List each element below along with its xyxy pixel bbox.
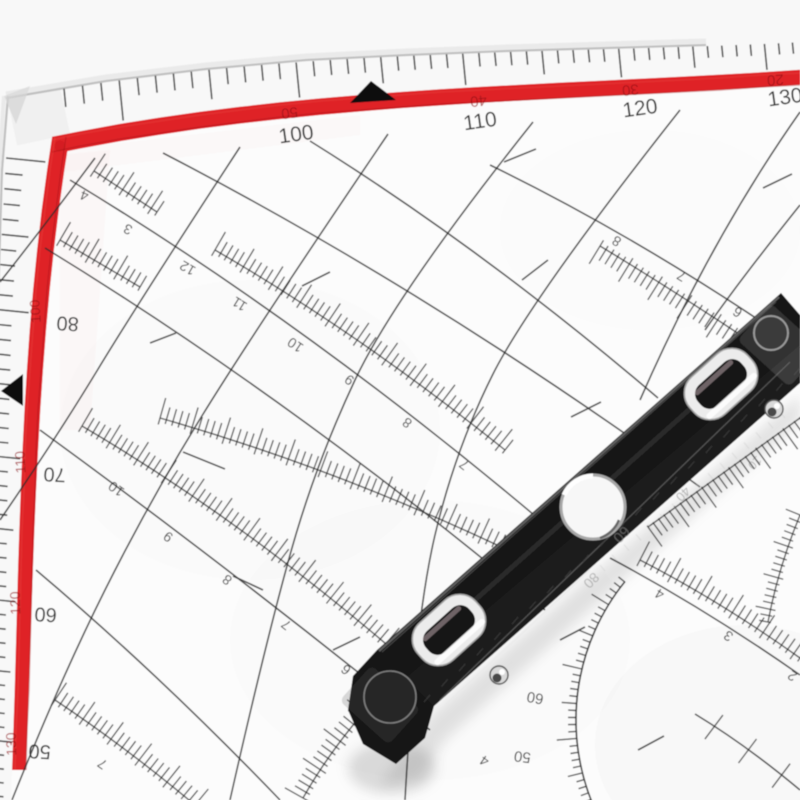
svg-text:30: 30 <box>621 80 639 98</box>
svg-text:120: 120 <box>621 95 659 123</box>
svg-text:60: 60 <box>34 602 57 625</box>
svg-text:110: 110 <box>462 108 498 135</box>
svg-text:70: 70 <box>43 462 66 485</box>
svg-text:50: 50 <box>280 103 299 122</box>
svg-text:40: 40 <box>469 91 487 110</box>
svg-text:100: 100 <box>277 121 315 149</box>
svg-text:130: 130 <box>766 84 800 112</box>
svg-text:120: 120 <box>7 591 24 615</box>
svg-text:110: 110 <box>11 450 28 473</box>
svg-text:50: 50 <box>513 747 532 766</box>
svg-text:100: 100 <box>26 299 44 324</box>
svg-text:130: 130 <box>3 732 20 756</box>
svg-text:60: 60 <box>526 688 545 708</box>
svg-text:80: 80 <box>56 311 79 334</box>
